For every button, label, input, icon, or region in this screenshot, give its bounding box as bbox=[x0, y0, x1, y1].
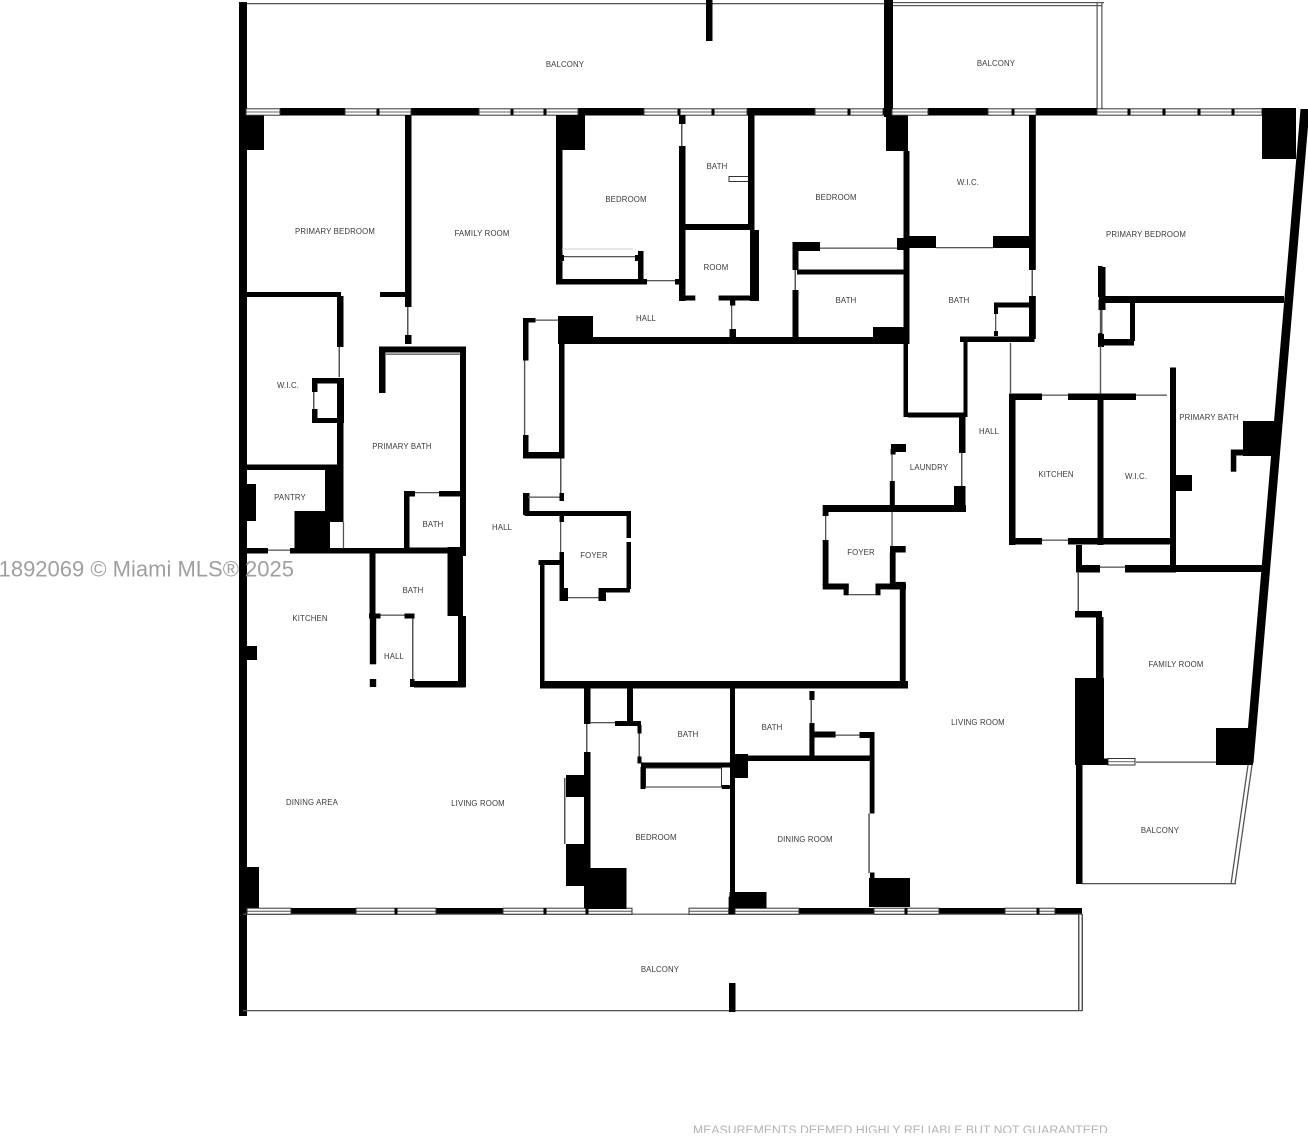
svg-text:FOYER: FOYER bbox=[580, 551, 608, 560]
svg-text:HALL: HALL bbox=[384, 652, 405, 661]
svg-text:ROOM: ROOM bbox=[704, 263, 729, 272]
svg-text:11892069 © Miami MLS® 2025: 11892069 © Miami MLS® 2025 bbox=[0, 557, 294, 582]
svg-text:BATH: BATH bbox=[949, 296, 970, 305]
svg-text:BEDROOM: BEDROOM bbox=[605, 195, 646, 204]
svg-text:BALCONY: BALCONY bbox=[546, 60, 585, 69]
svg-text:W.I.C.: W.I.C. bbox=[957, 178, 979, 187]
svg-text:FOYER: FOYER bbox=[847, 548, 875, 557]
svg-text:BALCONY: BALCONY bbox=[641, 965, 680, 974]
svg-text:BATH: BATH bbox=[403, 586, 424, 595]
svg-text:BEDROOM: BEDROOM bbox=[635, 833, 676, 842]
svg-text:LAUNDRY: LAUNDRY bbox=[910, 463, 949, 472]
svg-text:BATH: BATH bbox=[762, 723, 783, 732]
svg-text:HALL: HALL bbox=[636, 314, 657, 323]
svg-text:DINING AREA: DINING AREA bbox=[286, 798, 339, 807]
svg-text:BATH: BATH bbox=[707, 162, 728, 171]
svg-text:PRIMARY BEDROOM: PRIMARY BEDROOM bbox=[295, 227, 375, 236]
svg-text:DINING ROOM: DINING ROOM bbox=[777, 835, 832, 844]
svg-text:BATH: BATH bbox=[678, 730, 699, 739]
svg-text:BATH: BATH bbox=[423, 520, 444, 529]
svg-text:KITCHEN: KITCHEN bbox=[1038, 470, 1073, 479]
svg-text:KITCHEN: KITCHEN bbox=[292, 614, 327, 623]
svg-text:PANTRY: PANTRY bbox=[274, 493, 306, 502]
svg-text:FAMILY ROOM: FAMILY ROOM bbox=[454, 229, 509, 238]
svg-text:PRIMARY BATH: PRIMARY BATH bbox=[1179, 413, 1238, 422]
svg-text:W.I.C.: W.I.C. bbox=[277, 381, 299, 390]
svg-text:PRIMARY BATH: PRIMARY BATH bbox=[372, 442, 431, 451]
svg-text:LIVING ROOM: LIVING ROOM bbox=[451, 799, 505, 808]
svg-text:BEDROOM: BEDROOM bbox=[815, 193, 856, 202]
svg-text:W.I.C.: W.I.C. bbox=[1125, 472, 1147, 481]
svg-text:BALCONY: BALCONY bbox=[977, 59, 1016, 68]
svg-text:MEASUREMENTS DEEMED HIGHLY REL: MEASUREMENTS DEEMED HIGHLY RELIABLE BUT … bbox=[693, 1123, 1111, 1133]
svg-text:BALCONY: BALCONY bbox=[1141, 826, 1180, 835]
svg-text:PRIMARY BEDROOM: PRIMARY BEDROOM bbox=[1106, 230, 1186, 239]
svg-text:HALL: HALL bbox=[492, 523, 513, 532]
svg-text:LIVING ROOM: LIVING ROOM bbox=[951, 718, 1005, 727]
svg-text:BATH: BATH bbox=[836, 296, 857, 305]
svg-text:HALL: HALL bbox=[979, 427, 1000, 436]
svg-text:FAMILY ROOM: FAMILY ROOM bbox=[1148, 660, 1203, 669]
